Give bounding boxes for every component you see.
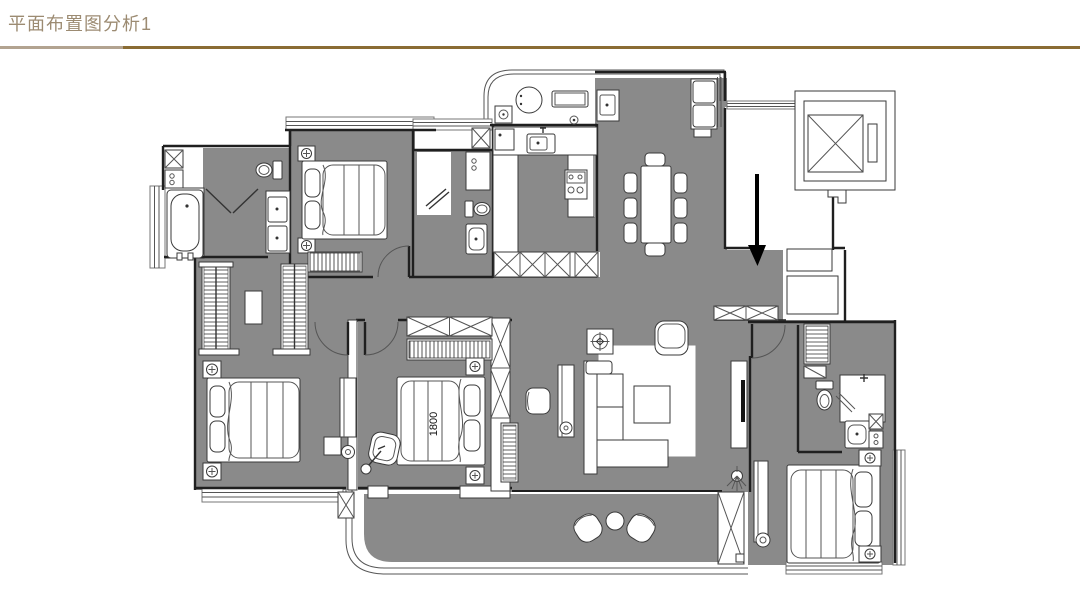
sink-icon (845, 421, 870, 448)
toilet-icon (816, 381, 833, 410)
cabinet (324, 437, 341, 455)
tv-icon (741, 380, 745, 422)
shoe-cabinet (787, 249, 832, 271)
dining-table (641, 166, 671, 243)
double-vanity (266, 191, 290, 253)
bed-icon (207, 378, 300, 462)
chair (674, 223, 687, 243)
armchair (526, 388, 550, 414)
ceiling-fan-icon (587, 329, 613, 354)
window-bedroom3-south (786, 562, 882, 574)
bay-window-bedroom1 (202, 488, 343, 502)
desk (754, 461, 768, 542)
side-cabinet (558, 365, 574, 437)
stove-icon (565, 170, 587, 199)
bed-icon: 1800 (397, 377, 485, 465)
shoe-cabinet (787, 276, 838, 314)
bathtub-icon (167, 190, 203, 260)
chair (756, 533, 770, 547)
chair (624, 198, 637, 218)
desk (340, 378, 356, 437)
chair (674, 198, 687, 218)
chair (645, 153, 665, 166)
slide: 平面布置图分析1 (0, 0, 1080, 607)
bay-window-tub (150, 186, 165, 268)
window-band-entry (727, 101, 795, 109)
chair (342, 446, 355, 459)
floor-plan: 1800 (0, 0, 1080, 607)
chair (624, 223, 637, 243)
elevator (795, 91, 895, 203)
round-table-icon (516, 87, 542, 113)
radiator (407, 339, 492, 360)
chair (674, 173, 687, 193)
dresser (245, 291, 262, 324)
cabinet-row (494, 252, 598, 277)
bed-icon (302, 161, 387, 239)
keyboard-cabinet (501, 423, 518, 482)
tv-wall (731, 361, 747, 448)
chair (624, 173, 637, 193)
toilet-icon (465, 201, 490, 217)
bench-seat (691, 79, 717, 137)
armchair (655, 321, 688, 355)
coffee-table (634, 386, 670, 423)
wardrobe-top (407, 317, 492, 336)
chair (645, 243, 665, 256)
round-table-icon (606, 512, 624, 530)
bay-window-top-bedroom (286, 117, 434, 130)
storage-strip (714, 306, 778, 320)
bed-dimension-label: 1800 (428, 412, 440, 436)
counter (493, 155, 518, 252)
radiator (308, 252, 362, 272)
hall-vanity (597, 90, 619, 121)
